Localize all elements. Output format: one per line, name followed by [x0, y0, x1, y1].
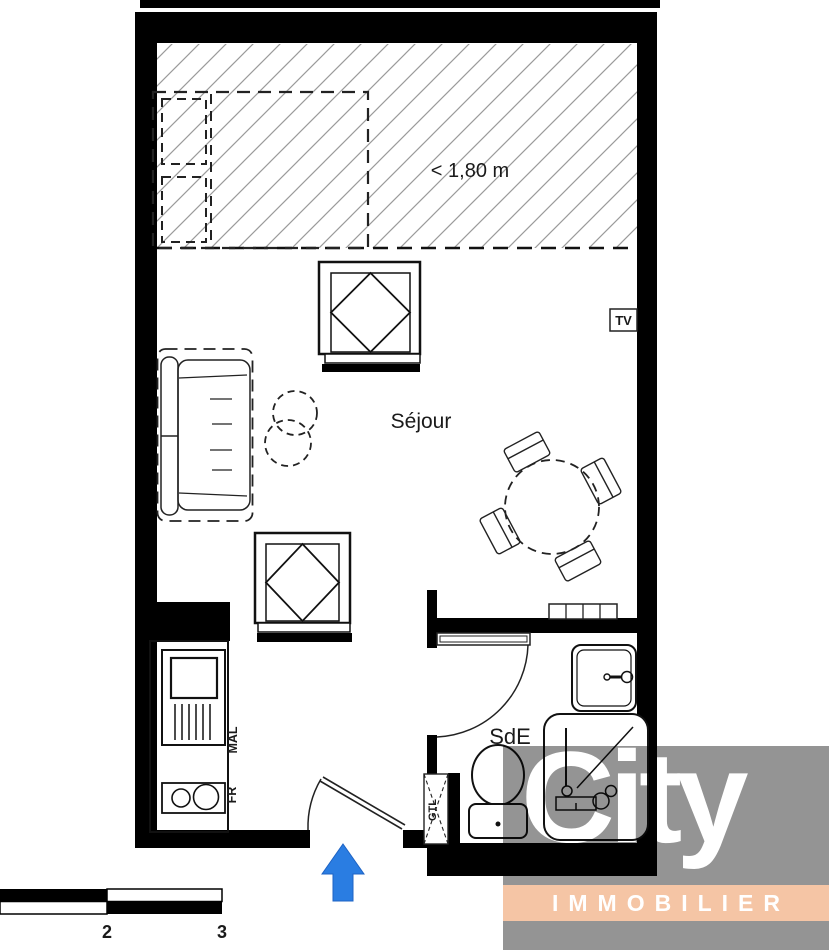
wall-bathroom-left-upper — [427, 590, 437, 648]
scale-bar: 2 3 — [0, 889, 227, 942]
side-tables — [265, 391, 317, 466]
wall-kitchen-block — [148, 602, 230, 641]
low-ceiling-hatch-zone — [157, 44, 637, 248]
bathroom-door-leaf — [437, 633, 530, 645]
scale-tick-2: 2 — [102, 922, 112, 942]
wall-gtl-post — [448, 773, 460, 848]
wall-top — [135, 12, 657, 43]
chair — [554, 540, 602, 582]
agency-logo-band: IMMOBILIER — [503, 885, 829, 921]
agency-logo-brand: City — [521, 746, 829, 862]
duct-label: GTL — [427, 799, 439, 821]
dining-set — [479, 431, 622, 582]
fridge-label: FR — [225, 787, 239, 804]
top-edge-strip — [140, 0, 660, 8]
room-label: Séjour — [391, 410, 452, 433]
washer-label: MAL — [226, 726, 240, 753]
chair — [503, 431, 551, 473]
floorplan-page: TV < 1,80 m Séjour SdE MAL FR GTL 2 3 Ci… — [0, 0, 829, 950]
sofa — [158, 349, 253, 521]
scale-tick-3: 3 — [217, 922, 227, 942]
kitchen — [150, 641, 228, 832]
agency-logo-tagline: IMMOBILIER — [542, 890, 790, 917]
height-limit-label: < 1,80 m — [431, 160, 509, 182]
door-leaf — [320, 777, 405, 829]
chair — [479, 507, 521, 555]
sink — [572, 645, 636, 711]
roof-window-top — [319, 262, 420, 372]
tv-label: TV — [615, 313, 632, 328]
entrance-arrow-icon — [322, 844, 364, 901]
agency-logo: City IMMOBILIER — [503, 746, 829, 950]
roof-window-bottom — [255, 533, 352, 642]
tv-marker: TV — [610, 309, 637, 331]
entrance — [308, 777, 405, 901]
wall-bathroom-top — [427, 618, 637, 633]
door-swing-arc — [308, 779, 321, 830]
chair — [580, 457, 622, 505]
